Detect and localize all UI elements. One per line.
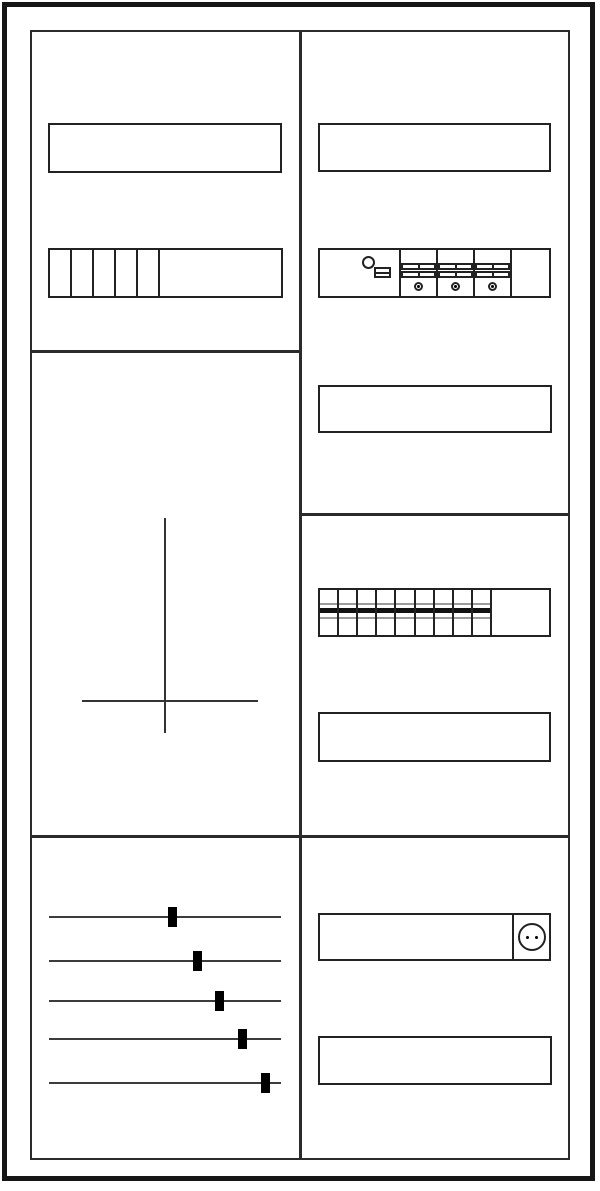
rail-module	[358, 590, 377, 635]
meter-cross-horizontal	[82, 700, 258, 702]
breaker-toggle-bar	[438, 271, 473, 278]
terminal-segment	[138, 250, 160, 296]
socket-pin-left	[526, 936, 529, 939]
breaker-toggle-divider	[455, 271, 457, 278]
label-field-right-1	[318, 123, 551, 172]
breaker-toggle-divider	[418, 263, 420, 270]
wire-terminal-marker	[261, 1073, 270, 1093]
rail-module	[396, 590, 415, 635]
wire-terminal-marker	[193, 951, 202, 971]
socket-pin-right	[535, 936, 538, 939]
meter-cabinet-diagram	[0, 0, 600, 1191]
rail-module	[339, 590, 358, 635]
breaker-toggle-bar	[401, 271, 436, 278]
right-section-divider	[302, 513, 570, 516]
rail-module	[454, 590, 473, 635]
breaker-toggle-bar	[475, 271, 510, 278]
module-rail-blank	[492, 590, 549, 635]
label-field-right-3	[318, 712, 551, 762]
terminal-segment	[50, 250, 72, 296]
breaker-module	[473, 250, 510, 296]
busbar-wire	[49, 960, 281, 962]
terminal-segment	[72, 250, 94, 296]
module-rail	[318, 588, 551, 637]
busbar-wire	[49, 1082, 281, 1084]
breaker-module	[436, 250, 473, 296]
terminal-segment	[94, 250, 116, 296]
rail-module	[320, 590, 339, 635]
busbar-wire	[49, 916, 281, 918]
breaker-toggle-bar	[401, 263, 436, 270]
left-section-divider	[32, 350, 299, 353]
breaker-module	[399, 250, 436, 296]
breaker-toggle-divider	[492, 263, 494, 270]
switch-rail	[318, 248, 551, 298]
busbar-wire	[49, 1000, 281, 1002]
breaker-toggle-divider	[418, 271, 420, 278]
rail-module	[377, 590, 396, 635]
breaker-toggle-divider	[455, 263, 457, 270]
column-divider	[299, 30, 302, 1160]
terminal-segment	[116, 250, 138, 296]
breaker-screw-icon	[451, 282, 460, 291]
socket-box	[512, 913, 551, 961]
control-device-box-line	[376, 272, 389, 274]
rail-module	[416, 590, 435, 635]
socket-outlet-icon	[518, 923, 546, 951]
label-field-right-4	[318, 1036, 552, 1085]
switch-rail-blank	[510, 250, 549, 296]
wire-terminal-marker	[215, 991, 224, 1011]
label-field-left-top	[48, 123, 282, 173]
rail-module	[473, 590, 492, 635]
breaker-screw-icon	[488, 282, 497, 291]
breaker-toggle-bar	[475, 263, 510, 270]
bottom-section-divider	[32, 835, 568, 838]
breaker-screw-icon	[414, 282, 423, 291]
breaker-toggle-divider	[492, 271, 494, 278]
breaker-toggle-bar	[438, 263, 473, 270]
module-cells	[320, 590, 492, 635]
wire-terminal-marker	[238, 1029, 247, 1049]
label-field-right-2	[318, 385, 552, 433]
wire-group	[49, 900, 281, 1100]
terminal-block	[48, 248, 283, 298]
control-device-section	[320, 250, 399, 296]
rail-module	[435, 590, 454, 635]
wire-terminal-marker	[168, 907, 177, 927]
socket-panel	[318, 913, 514, 961]
control-device-box-icon	[374, 267, 391, 278]
